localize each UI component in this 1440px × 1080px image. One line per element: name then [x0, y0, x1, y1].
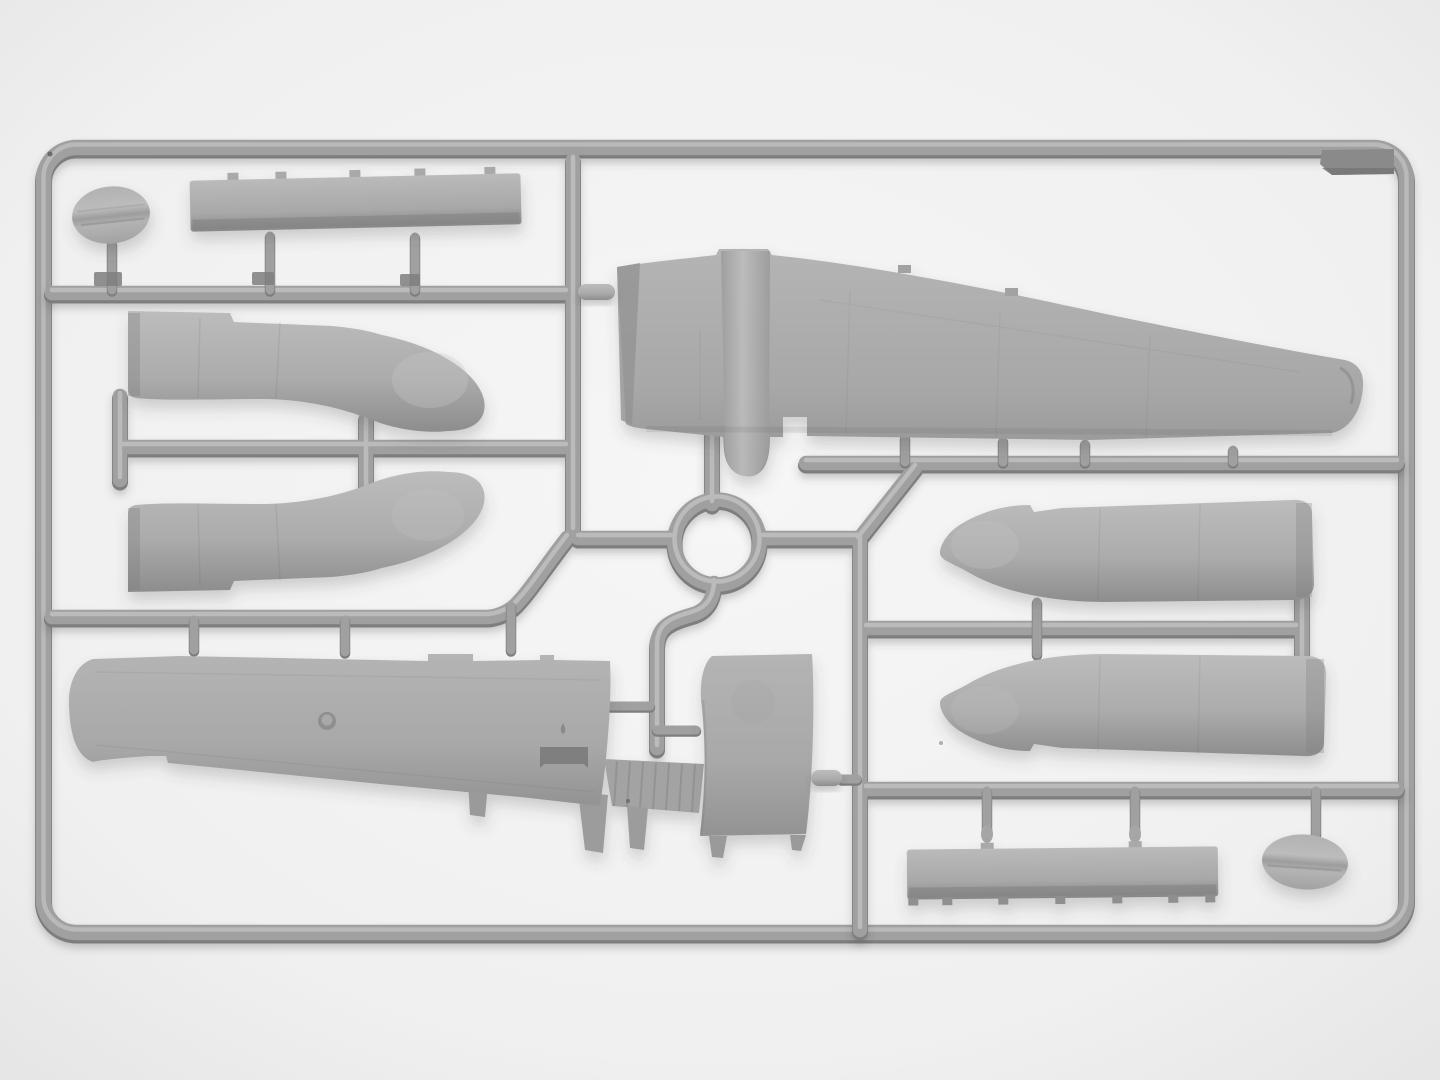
gate-hook-tip — [981, 825, 993, 843]
sprue-photo-canvas — [0, 0, 1440, 1080]
speck — [48, 152, 53, 157]
small-knob-part — [578, 284, 615, 300]
leading-edge-tab — [1005, 288, 1018, 296]
mold-mark — [731, 680, 775, 724]
wing-port-hole-inner — [322, 715, 333, 726]
speck — [626, 799, 630, 803]
corner-tab — [1320, 149, 1394, 175]
nose-highlight — [951, 521, 1019, 569]
nose-highlight — [392, 352, 468, 408]
strip-foot — [1168, 895, 1178, 903]
nacelle-ur-open-end — [1296, 503, 1312, 597]
wing-center-fairing — [720, 251, 770, 476]
cowl-ll-open-end — [128, 508, 140, 590]
gate-foot — [94, 272, 122, 286]
small-bullet-part — [811, 770, 842, 786]
corner-tab-edge — [1322, 168, 1394, 175]
strip-foot — [1055, 896, 1065, 904]
nose-highlight — [392, 489, 464, 541]
bullet-body — [811, 770, 842, 786]
nose-highlight — [951, 686, 1019, 734]
nacelle-lr-open-end — [1306, 659, 1324, 753]
sprue-photo — [0, 0, 1440, 1080]
gate-foot — [400, 274, 420, 286]
leading-edge-tab — [898, 265, 911, 273]
gate-foot — [252, 272, 274, 285]
strip-foot — [998, 897, 1008, 905]
trailing-edge-shade — [646, 429, 1332, 433]
flap-strip-part-bottom — [907, 840, 1219, 905]
gate-hook-tip — [1129, 825, 1141, 843]
cowl-ul-open-end — [128, 313, 140, 396]
strip-foot — [1112, 895, 1122, 903]
center-section-part — [700, 654, 813, 858]
strip-foot — [942, 897, 952, 905]
strip-foot — [908, 897, 918, 905]
speck — [939, 741, 943, 745]
knob-body — [578, 284, 615, 300]
strip-foot — [1205, 894, 1215, 902]
wing-slot-lip — [540, 764, 588, 768]
